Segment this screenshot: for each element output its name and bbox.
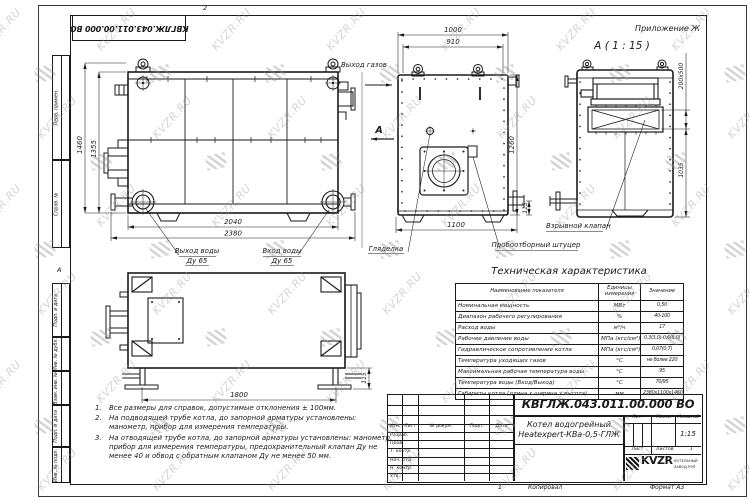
margin-label: Инв. № подл. xyxy=(53,448,62,482)
copied-label: Копировал xyxy=(528,485,562,491)
spec-cell-name: Гидравлическое сопротивление котла xyxy=(456,345,599,356)
margin-box-2: Справ. № xyxy=(52,160,70,248)
view-detail-a: Приложение Ж А ( 1 : 15 ) 200х500 1035 В… xyxy=(540,18,710,240)
label-water-out-dn: Ду 65 xyxy=(186,257,208,265)
stamp-col-list: Лист xyxy=(402,425,418,430)
support-feet xyxy=(122,368,361,389)
stamp-col-izm: Изм. xyxy=(388,425,402,430)
leader-lines xyxy=(546,120,645,232)
spec-cell-name: Диапазон рабочего регулирования xyxy=(456,312,599,323)
product-name-line1: Котел водогрейный xyxy=(527,420,611,430)
spec-cell-value: не более 220 xyxy=(641,356,684,367)
margin-label: Взам. инв. № xyxy=(53,372,62,404)
label-explosion-valve: Взрывной клапан xyxy=(546,222,611,230)
spec-cell-value: 17 xyxy=(641,323,684,334)
margin-box-5: Взам. инв. № xyxy=(52,371,70,405)
stamp-designation: КВГЛЖ.043.011.00.000 ВО xyxy=(515,395,701,415)
spec-cell-value: 40-100 xyxy=(641,312,684,323)
stamp-grid-line xyxy=(625,446,701,447)
spec-cell-units: °С xyxy=(599,367,641,378)
label-sampler: Пробоотборный штуцер xyxy=(491,241,581,249)
spec-cell-units: м³/ч xyxy=(599,323,641,334)
stamp-scale-value: 1:15 xyxy=(675,431,701,438)
spec-cell-value: 0,50 xyxy=(641,301,684,312)
spec-row: Максимальная рабочая температура воды°С9… xyxy=(456,367,684,378)
stamp-grid-line xyxy=(402,395,403,481)
title-block: Изм. Лист № докум. Подп. Дата Разраб. Пр… xyxy=(387,394,703,483)
note-3: 3.На отводящей трубе котла, до запорной … xyxy=(95,434,393,462)
stamp-sheets-value: 1 xyxy=(690,448,693,453)
spec-row: Номинальная мощностьМВт0,50 xyxy=(456,301,684,312)
stamp-grid-line xyxy=(464,395,465,481)
burner-plate xyxy=(420,147,468,195)
spec-cell-units: % xyxy=(599,312,641,323)
spec-cell-name: Температура уходящих газов xyxy=(456,356,599,367)
kvzr-logo-sub2: ЗАВОД РЭП xyxy=(674,465,695,470)
note-2: 2.На подводящей трубе котла, до запорной… xyxy=(95,414,393,432)
spec-col-units: Единицы измерения xyxy=(599,284,641,301)
margin-label: Инв. № дубл. xyxy=(53,338,62,370)
label-water-in-dn: Ду 65 xyxy=(271,257,293,265)
stamp-row-tkontr: Т. контр. xyxy=(390,450,412,455)
stamp-grid-line xyxy=(489,395,490,481)
boiler-bottom-geometry xyxy=(106,273,372,403)
spec-col-name: Наименование показателя xyxy=(456,284,599,301)
stamp-product-name: Котел водогрейный Heatexpert-КВа-0,5-ГЛЖ xyxy=(515,416,623,443)
watermark-text: KVZR.RU xyxy=(0,182,23,228)
dim-foot-115: 115 xyxy=(361,372,368,384)
label-sight-glass: Гляделка xyxy=(369,245,404,253)
dim-2040: 2040 xyxy=(224,218,242,226)
stamp-grid-line xyxy=(623,415,625,481)
dim-910: 910 xyxy=(446,38,460,46)
zone-mark-top: 2 xyxy=(203,5,207,12)
spec-cell-value: 95 xyxy=(641,367,684,378)
access-door xyxy=(148,298,183,343)
dimension-lines xyxy=(85,63,355,241)
label-water-in: Вход воды xyxy=(262,247,302,255)
watermark-text: KVZR.RU xyxy=(0,358,23,404)
label-water-out: Выход воды xyxy=(175,247,220,255)
stamp-grid-line xyxy=(625,423,701,424)
spec-col-value: Значение xyxy=(641,284,684,301)
stamp-col-data: Дата xyxy=(489,425,514,430)
spec-table-title: Техническая характеристика xyxy=(455,267,683,277)
spec-row: Рабочее давление водыМПа (кгс/см²)0,3(3,… xyxy=(456,334,684,345)
spec-cell-units: °С xyxy=(599,356,641,367)
stamp-grid-line xyxy=(388,465,515,466)
stamp-grid-line xyxy=(388,457,515,458)
margin-label: Подп. и дата xyxy=(53,284,62,336)
stamp-grid-line xyxy=(651,415,652,454)
spec-cell-units: МВт xyxy=(599,301,641,312)
spec-cell-name: Расход воды xyxy=(456,323,599,334)
kvzr-logo-icon xyxy=(626,457,639,470)
spec-cell-units: МПа (кгс/см²) xyxy=(599,345,641,356)
copy-number: 1 xyxy=(498,485,502,491)
margin-label: Подп. и дата xyxy=(53,406,62,446)
stamp-grid-line xyxy=(388,448,515,449)
spec-header-row: Наименование показателя Единицы измерени… xyxy=(456,284,684,301)
stamp-grid-line xyxy=(388,405,515,406)
dim-2380: 2380 xyxy=(224,230,242,238)
stamp-grid-line xyxy=(418,395,419,481)
mirror-designation-box: КВГЛЖ.043.011.00.000 ВО xyxy=(72,15,186,41)
view-side: 1460 1355 2040 2380 Выход газов А Выход … xyxy=(75,52,400,270)
stamp-grid-line xyxy=(388,473,515,474)
spec-row: Гидравлическое сопротивление котлаМПа (к… xyxy=(456,345,684,356)
margin-box-4: Инв. № дубл. xyxy=(52,337,70,371)
margin-box-6: Подп. и дата xyxy=(52,405,70,447)
view-bottom: 1800 115 xyxy=(85,265,385,410)
margin-label: Справ. № xyxy=(53,161,62,247)
notes: 1.Все размеры для справок, допустимые от… xyxy=(95,404,393,462)
dimension-lines xyxy=(396,32,532,233)
stamp-grid-line xyxy=(633,423,634,446)
stamp-sheet-label: Лист xyxy=(624,448,651,453)
stamp-row-utv: Утв. xyxy=(390,475,400,480)
product-name-line2: Heatexpert-КВа-0,5-ГЛЖ xyxy=(518,430,620,440)
annex-label: Приложение Ж xyxy=(635,24,700,33)
spec-cell-name: Температура воды (Вход/Выход) xyxy=(456,378,599,389)
margin-box-7: Инв. № подл. xyxy=(52,447,70,483)
margin-box-1: Перв. примен. xyxy=(52,55,70,160)
left-fittings xyxy=(104,85,128,186)
stamp-col-podp: Подп. xyxy=(464,425,489,430)
spec-cell-value: 70/95 xyxy=(641,378,684,389)
spec-cell-units: МПа (кгс/см²) xyxy=(599,334,641,345)
spec-cell-name: Максимальная рабочая температура воды xyxy=(456,367,599,378)
format-label: Формат А3 xyxy=(650,485,684,491)
spec-row: Диапазон рабочего регулирования%40-100 xyxy=(456,312,684,323)
margin-label: Перв. примен. xyxy=(53,56,62,159)
dim-1355: 1355 xyxy=(90,140,98,158)
spec-cell-units: °С xyxy=(599,378,641,389)
kvzr-logo-sub1: КОТЕЛЬНЫЙ xyxy=(674,459,698,464)
dim-200x500: 200х500 xyxy=(678,63,685,90)
stamp-col-docnum: № докум. xyxy=(418,425,464,430)
gas-outlet-duct xyxy=(338,82,355,120)
drawing-sheet: Перв. примен. Справ. № Подп. и дата Инв.… xyxy=(0,0,750,500)
explosion-valve-box xyxy=(588,107,663,132)
margin-box-3: Подп. и дата xyxy=(52,283,70,337)
stamp-grid-line xyxy=(625,454,701,455)
stamp-grid-line xyxy=(388,432,515,433)
spec-row: Температура уходящих газов°Сне более 220 xyxy=(456,356,684,367)
note-1: 1.Все размеры для справок, допустимые от… xyxy=(95,404,393,413)
kvzr-logo-text: KVZR xyxy=(641,455,672,466)
stamp-grid-line xyxy=(515,415,701,417)
spec-cell-name: Рабочее давление воды xyxy=(456,334,599,345)
stamp-sheets-label: Листов xyxy=(656,448,674,453)
spec-cell-value: 0,07(0,7) xyxy=(641,345,684,356)
stamp-grid-line xyxy=(642,423,643,446)
dim-1460: 1460 xyxy=(76,136,84,154)
dim-1000: 1000 xyxy=(444,26,462,34)
spec-table: Наименование показателя Единицы измерени… xyxy=(455,283,684,400)
detail-title: А ( 1 : 15 ) xyxy=(593,40,650,52)
stamp-grid-line xyxy=(513,395,515,481)
spec-row: Температура воды (Вход/Выход)°С70/95 xyxy=(456,378,684,389)
stamp-grid-line xyxy=(675,415,676,446)
economizer-box xyxy=(581,78,660,105)
stamp-grid-line xyxy=(388,415,515,416)
stamp-grid-line xyxy=(515,444,623,445)
spec-row: Расход водым³/ч17 xyxy=(456,323,684,334)
dim-115: 115 xyxy=(522,202,529,214)
dim-1800: 1800 xyxy=(230,391,248,399)
watermark-text: KVZR.RU xyxy=(0,6,23,52)
boiler-rear-geometry xyxy=(546,53,690,232)
stamp-grid-line xyxy=(388,440,515,441)
spec-cell-name: Номинальная мощность xyxy=(456,301,599,312)
water-flanges xyxy=(132,191,344,213)
corner-pads xyxy=(132,277,341,356)
lifting-lugs xyxy=(136,59,340,72)
stamp-grid-line xyxy=(388,424,515,425)
zone-mark-left: А xyxy=(57,267,61,274)
dim-1260: 1260 xyxy=(508,136,516,154)
dim-1035: 1035 xyxy=(678,162,685,177)
stamp-row-razrab: Разраб. xyxy=(390,434,408,439)
mirror-designation: КВГЛЖ.043.011.00.000 ВО xyxy=(70,24,189,32)
sampler-fitting xyxy=(468,146,477,157)
lifting-lugs xyxy=(582,60,668,70)
spec-cell-value: 0,3(3,0)-0,6(6,0) xyxy=(641,334,684,345)
dim-1100: 1100 xyxy=(447,221,465,229)
